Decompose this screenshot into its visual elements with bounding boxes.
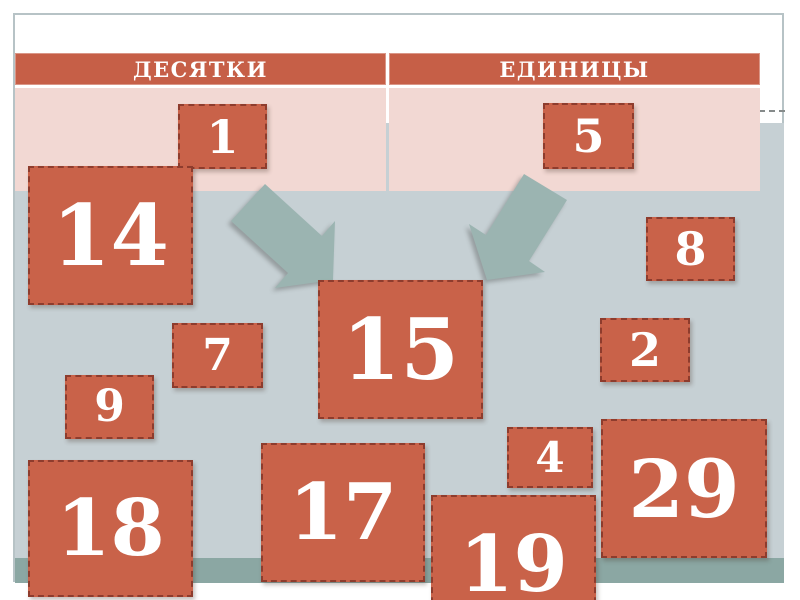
tile-number: 2 bbox=[629, 327, 661, 373]
number-tile-9[interactable]: 9 bbox=[65, 375, 154, 439]
table-header-tens: ДЕСЯТКИ bbox=[15, 53, 386, 85]
number-tile-18[interactable]: 18 bbox=[28, 460, 193, 597]
number-tile-19[interactable]: 19 bbox=[431, 495, 596, 600]
number-tile-8[interactable]: 8 bbox=[646, 217, 735, 281]
number-tile-1[interactable]: 1 bbox=[178, 104, 267, 169]
tile-number: 9 bbox=[94, 385, 125, 429]
table-header-ones: ЕДИНИЦЫ bbox=[389, 53, 760, 85]
tile-number: 18 bbox=[56, 490, 165, 568]
number-tile-7[interactable]: 7 bbox=[172, 323, 263, 388]
number-tile-15[interactable]: 15 bbox=[318, 280, 483, 419]
tile-number: 4 bbox=[535, 437, 564, 479]
place-value-table-header: ДЕСЯТКИ ЕДИНИЦЫ bbox=[15, 53, 760, 85]
number-tile-5[interactable]: 5 bbox=[543, 103, 634, 169]
tile-number: 29 bbox=[628, 449, 739, 529]
tile-number: 15 bbox=[342, 308, 459, 392]
tile-number: 7 bbox=[202, 334, 233, 378]
tile-number: 1 bbox=[206, 114, 238, 160]
slide-canvas: ДЕСЯТКИ ЕДИНИЦЫ 1514827159429181719 bbox=[0, 0, 800, 600]
tile-number: 14 bbox=[52, 194, 169, 278]
number-tile-2[interactable]: 2 bbox=[600, 318, 690, 382]
number-tile-14[interactable]: 14 bbox=[28, 166, 193, 305]
dashed-line-remnant bbox=[759, 110, 785, 112]
tile-number: 17 bbox=[289, 474, 398, 552]
tile-number: 19 bbox=[459, 526, 568, 600]
number-tile-29[interactable]: 29 bbox=[601, 419, 767, 558]
tile-number: 5 bbox=[572, 113, 604, 159]
number-tile-4[interactable]: 4 bbox=[507, 427, 593, 488]
tile-number: 8 bbox=[674, 226, 706, 272]
number-tile-17[interactable]: 17 bbox=[261, 443, 425, 582]
